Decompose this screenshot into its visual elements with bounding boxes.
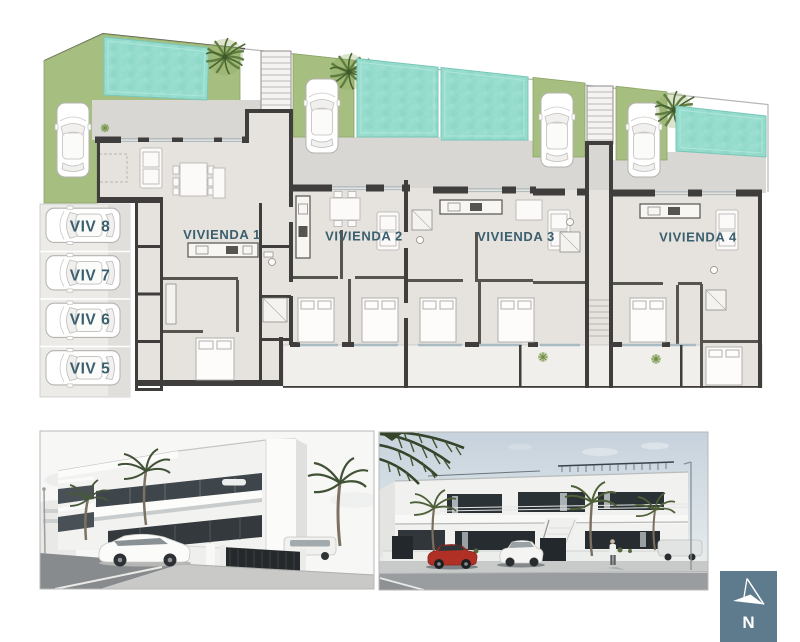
- svg-text:VIVIENDA 3: VIVIENDA 3: [477, 229, 555, 244]
- svg-text:VIVIENDA 2: VIVIENDA 2: [325, 229, 403, 244]
- svg-text:VIV 5: VIV 5: [70, 361, 110, 378]
- svg-text:N: N: [742, 613, 754, 632]
- svg-text:VIV 8: VIV 8: [70, 219, 110, 236]
- svg-text:VIVIENDA 1: VIVIENDA 1: [183, 227, 261, 242]
- svg-text:VIV 6: VIV 6: [70, 312, 110, 329]
- svg-text:VIVIENDA 4: VIVIENDA 4: [659, 230, 737, 245]
- svg-text:VIV 7: VIV 7: [70, 268, 110, 285]
